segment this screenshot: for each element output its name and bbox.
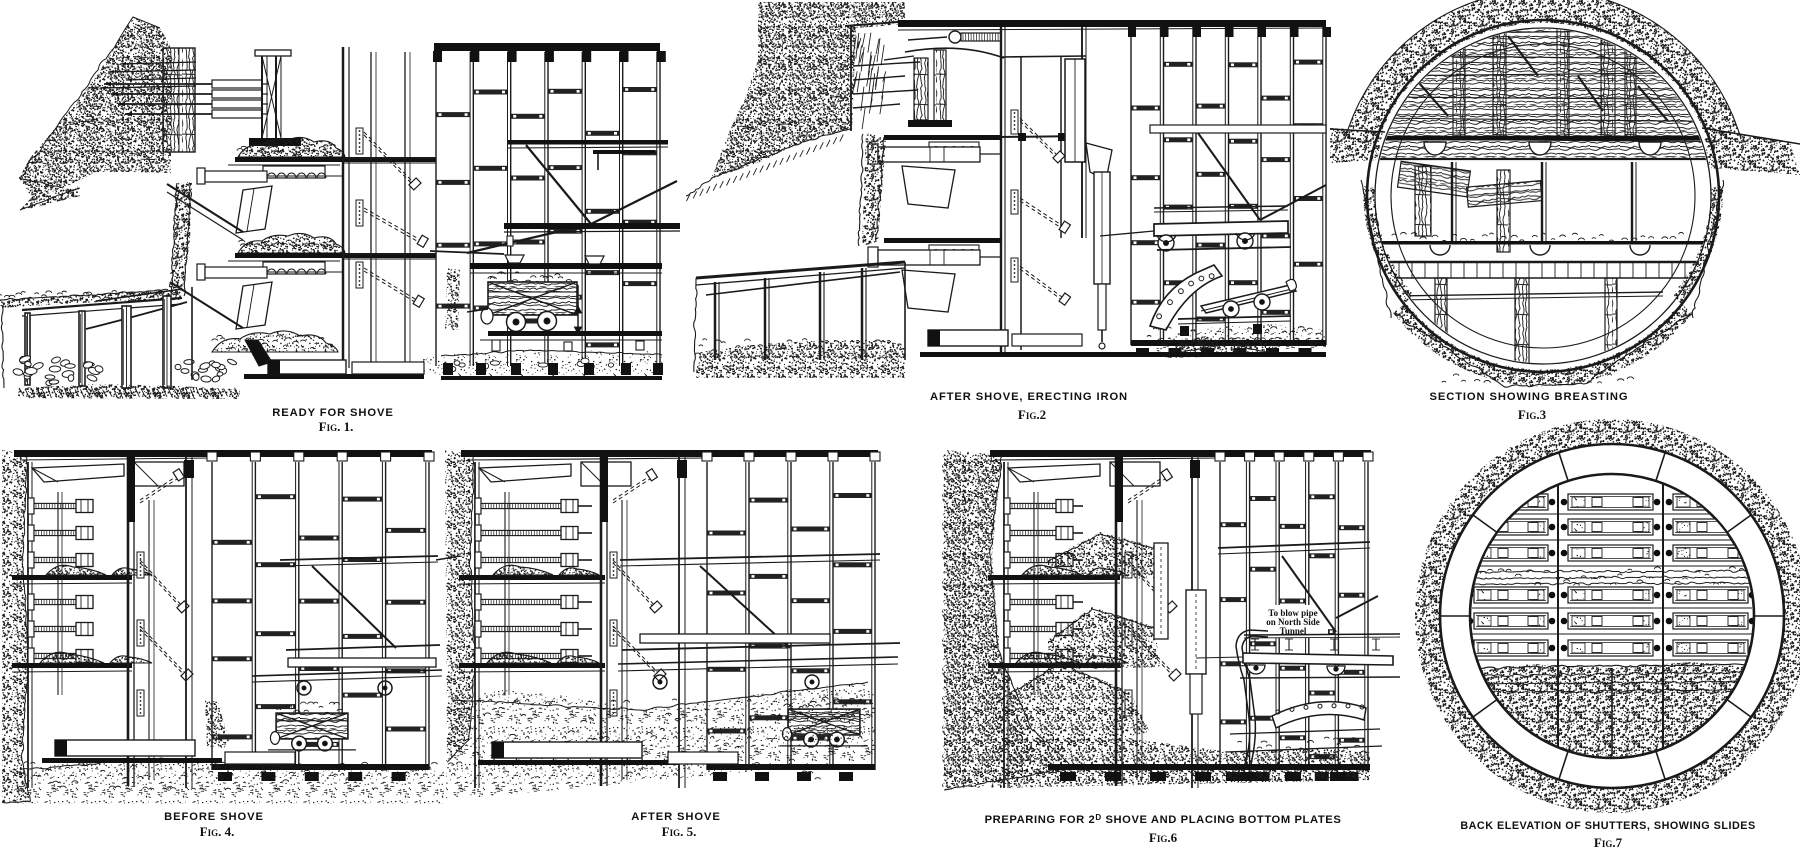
svg-text:Fig. 1.: Fig. 1.	[319, 419, 354, 434]
svg-text:READY FOR SHOVE: READY FOR SHOVE	[272, 407, 393, 419]
svg-text:BEFORE SHOVE: BEFORE SHOVE	[164, 811, 264, 823]
svg-text:AFTER SHOVE, ERECTING IRON: AFTER SHOVE, ERECTING IRON	[930, 391, 1128, 403]
svg-text:PREPARING FOR 2D SHOVE AND PLA: PREPARING FOR 2D SHOVE AND PLACING BOTTO…	[985, 813, 1342, 826]
svg-text:AFTER SHOVE: AFTER SHOVE	[631, 811, 720, 823]
svg-text:SECTION SHOWING BREASTING: SECTION SHOWING BREASTING	[1429, 391, 1628, 403]
svg-text:Fig.3: Fig.3	[1518, 407, 1547, 422]
svg-text:Fig. 4.: Fig. 4.	[200, 824, 235, 839]
svg-text:BACK ELEVATION OF SHUTTERS, SH: BACK ELEVATION OF SHUTTERS, SHOWING SLID…	[1460, 820, 1755, 832]
svg-text:Fig.2: Fig.2	[1018, 407, 1046, 422]
svg-text:Fig.7: Fig.7	[1594, 835, 1623, 848]
svg-text:Fig. 5.: Fig. 5.	[662, 824, 697, 839]
svg-text:Fig.6: Fig.6	[1149, 830, 1178, 845]
